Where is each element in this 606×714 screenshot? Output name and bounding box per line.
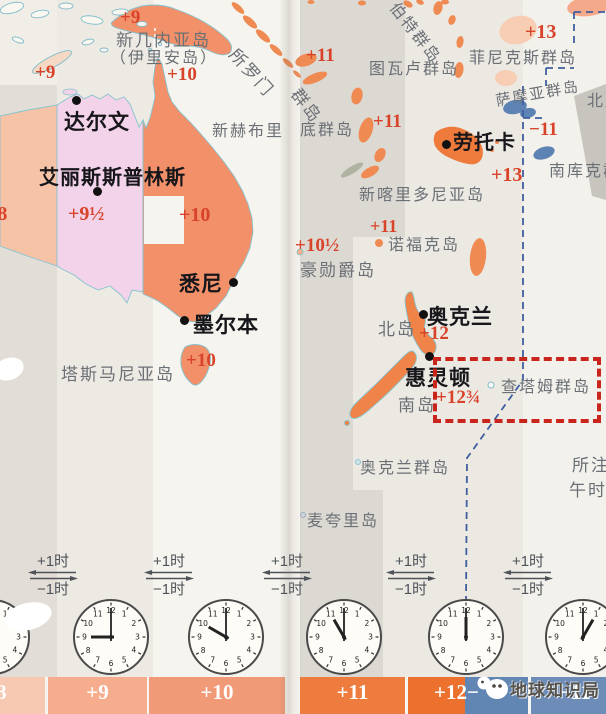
label-note-line2: 午时 xyxy=(569,476,606,501)
svg-text:5: 5 xyxy=(594,655,599,664)
label-new-hebrides-part2: 底群岛 xyxy=(300,116,354,140)
svg-text:5: 5 xyxy=(3,655,8,664)
svg-text:4: 4 xyxy=(365,646,370,655)
label-new-guinea-line2: （伊里安岛） xyxy=(110,44,218,68)
label-norfolk-island: 诺福克岛 xyxy=(388,231,460,255)
svg-text:8: 8 xyxy=(319,646,324,655)
city-darwin-dot xyxy=(72,96,81,105)
tz-plus9half: +9½ xyxy=(68,203,104,226)
svg-text:11: 11 xyxy=(93,610,103,619)
label-auckland-islands: 奥克兰群岛 xyxy=(360,454,450,478)
minus-one-hour: −1时 xyxy=(271,581,303,598)
label-new-hebrides-part1: 新赫布里 xyxy=(212,117,284,141)
exchange-pair-1: +1时−1时 xyxy=(24,553,82,598)
svg-text:3: 3 xyxy=(250,633,255,642)
svg-text:7: 7 xyxy=(210,655,215,664)
label-north-cook-partial: 北库克群岛 xyxy=(587,87,606,111)
plus-one-hour: +1时 xyxy=(395,553,427,570)
clock-plus9: 121234567891011 xyxy=(69,595,153,679)
city-lautoka-dot xyxy=(442,140,451,149)
svg-text:7: 7 xyxy=(95,655,100,664)
svg-text:9: 9 xyxy=(82,633,87,642)
tz-plus10half: +10½ xyxy=(295,235,339,257)
clock-minus11: 121234567891011 xyxy=(541,595,606,679)
tz-plus13-phoenix: +13 xyxy=(525,21,556,44)
svg-text:10: 10 xyxy=(438,619,448,628)
svg-text:10: 10 xyxy=(198,619,208,628)
tz-plus8-west: +8 xyxy=(0,203,7,226)
svg-text:9: 9 xyxy=(197,633,202,642)
label-tasmania: 塔斯马尼亚岛 xyxy=(61,360,175,385)
bar-plus9-label: +9 xyxy=(86,680,108,705)
city-auckland: 奥克兰 xyxy=(427,301,493,331)
tz-minus11: −11 xyxy=(529,119,558,141)
label-south-cook-partial: 南库克群岛 xyxy=(549,157,606,181)
svg-text:6: 6 xyxy=(109,659,114,668)
exchange-pair-5: +1时−1时 xyxy=(499,553,557,598)
svg-text:2: 2 xyxy=(247,619,252,628)
tz-plus11-santacruz: +11 xyxy=(306,45,335,67)
label-solomon-part1: 所罗门 xyxy=(224,42,281,101)
watermark-logo: 地球知识局 xyxy=(474,671,604,705)
svg-text:7: 7 xyxy=(328,655,333,664)
svg-text:7: 7 xyxy=(450,655,455,664)
svg-text:6: 6 xyxy=(464,659,469,668)
city-darwin: 达尔文 xyxy=(64,106,130,136)
svg-text:1: 1 xyxy=(122,610,127,619)
svg-text:1: 1 xyxy=(477,610,482,619)
plus-one-hour: +1时 xyxy=(153,553,185,570)
svg-text:3: 3 xyxy=(135,633,140,642)
svg-text:6: 6 xyxy=(342,659,347,668)
label-samoa: 萨摩亚群岛 xyxy=(494,75,581,110)
clock-plus12: 121234567891011 xyxy=(424,595,508,679)
svg-text:11: 11 xyxy=(326,610,336,619)
svg-text:1: 1 xyxy=(594,610,599,619)
city-melbourne-dot xyxy=(180,316,189,325)
label-south-island: 南岛 xyxy=(398,391,436,416)
svg-text:10: 10 xyxy=(555,619,565,628)
exchange-pair-4: +1时−1时 xyxy=(382,553,440,598)
minus-one-hour: −1时 xyxy=(37,581,69,598)
svg-text:9: 9 xyxy=(554,633,559,642)
bar-plus10: +10 xyxy=(149,677,285,714)
svg-text:8: 8 xyxy=(441,646,446,655)
svg-text:2: 2 xyxy=(487,619,492,628)
city-sydney-dot xyxy=(229,278,238,287)
label-north-island: 北岛 xyxy=(378,315,416,340)
plus-one-hour: +1时 xyxy=(37,553,69,570)
svg-text:8: 8 xyxy=(86,646,91,655)
svg-text:11: 11 xyxy=(208,610,218,619)
svg-text:11: 11 xyxy=(565,610,575,619)
chatham-highlight-box xyxy=(433,357,601,423)
scanned-map-page: +9+9+10+8+9½+10+10+11+11+11+10½+12+12¾+1… xyxy=(0,0,606,714)
exchange-pair-3: +1时−1时 xyxy=(258,553,316,598)
bar-plus10-label: +10 xyxy=(201,680,234,705)
label-tuvalu: 图瓦卢群岛 xyxy=(369,55,459,79)
svg-text:5: 5 xyxy=(237,655,242,664)
plus-one-hour: +1时 xyxy=(512,553,544,570)
svg-text:8: 8 xyxy=(558,646,563,655)
penguin-icon xyxy=(474,673,510,703)
svg-text:10: 10 xyxy=(316,619,326,628)
tz-plus10-tasmania: +10 xyxy=(186,350,216,372)
svg-text:2: 2 xyxy=(365,619,370,628)
svg-text:8: 8 xyxy=(201,646,206,655)
label-phoenix-islands: 菲尼克斯群岛 xyxy=(469,44,577,68)
svg-text:6: 6 xyxy=(224,659,229,668)
svg-text:6: 6 xyxy=(581,659,586,668)
bar-plus11-label: +11 xyxy=(337,680,369,705)
city-auckland-dot xyxy=(419,310,428,319)
city-alice-springs-dot xyxy=(93,187,102,196)
svg-text:3: 3 xyxy=(368,633,373,642)
tz-plus9-west: +9 xyxy=(35,62,55,84)
minus-one-hour: −1时 xyxy=(395,581,427,598)
tz-plus10-mid: +10 xyxy=(179,204,210,227)
svg-text:1: 1 xyxy=(355,610,360,619)
label-lord-howe: 豪勋爵岛 xyxy=(300,256,376,281)
svg-text:10: 10 xyxy=(83,619,93,628)
clock-plus11: 121234567891011 xyxy=(302,595,386,679)
exchange-pair-2: +1时−1时 xyxy=(140,553,198,598)
bar-plus11: +11 xyxy=(300,677,405,714)
svg-text:1: 1 xyxy=(237,610,242,619)
svg-text:9: 9 xyxy=(315,633,320,642)
watermark-text: 地球知识局 xyxy=(510,676,600,701)
bar-plus8-label: +8 xyxy=(0,680,6,705)
label-macquarie-island: 麦夸里岛 xyxy=(307,507,379,531)
svg-text:5: 5 xyxy=(477,655,482,664)
city-sydney: 悉尼 xyxy=(179,268,223,298)
city-lautoka: 劳托卡 xyxy=(453,126,516,155)
plus-one-hour: +1时 xyxy=(271,553,303,570)
svg-text:2: 2 xyxy=(132,619,137,628)
tz-plus11-vanuatu: +11 xyxy=(373,111,402,133)
minus-one-hour: −1时 xyxy=(153,581,185,598)
svg-text:5: 5 xyxy=(355,655,360,664)
bar-plus12-dateline-label: +12− xyxy=(434,680,479,705)
clock-plus10: 121234567891011 xyxy=(184,595,268,679)
svg-text:4: 4 xyxy=(247,646,252,655)
bar-plus9: +9 xyxy=(48,677,147,714)
tz-plus13-fiji-east: +13 xyxy=(491,164,522,187)
bar-plus8: +8 xyxy=(0,677,45,714)
city-melbourne: 墨尔本 xyxy=(193,309,259,339)
svg-text:7: 7 xyxy=(567,655,572,664)
svg-text:4: 4 xyxy=(487,646,492,655)
minus-one-hour: −1时 xyxy=(512,581,544,598)
svg-text:3: 3 xyxy=(490,633,495,642)
svg-text:3: 3 xyxy=(16,633,21,642)
label-note-line1: 所注 xyxy=(572,451,606,476)
svg-text:4: 4 xyxy=(132,646,137,655)
svg-text:5: 5 xyxy=(122,655,127,664)
svg-text:9: 9 xyxy=(437,633,442,642)
svg-text:4: 4 xyxy=(13,646,18,655)
svg-text:11: 11 xyxy=(448,610,458,619)
city-alice-springs: 艾丽斯斯普林斯 xyxy=(39,161,186,190)
label-new-caledonia: 新喀里多尼亚岛 xyxy=(359,181,485,205)
